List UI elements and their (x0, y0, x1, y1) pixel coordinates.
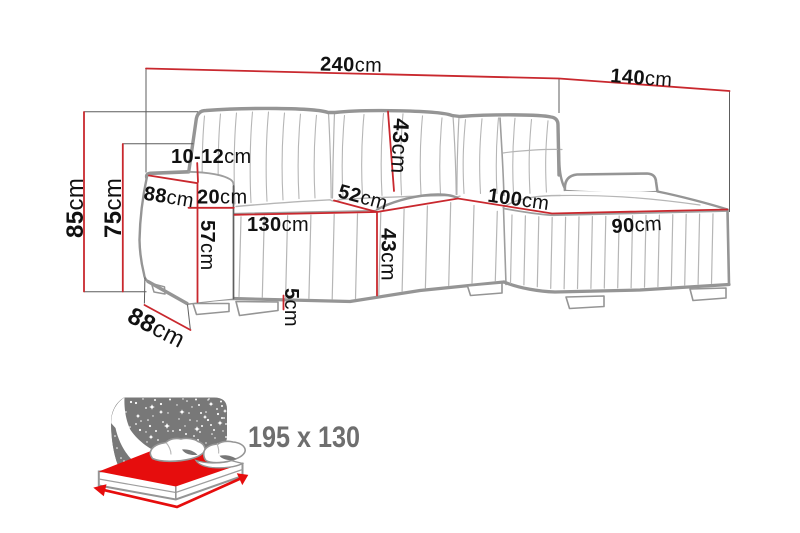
svg-text:10-12cm: 10-12cm (171, 146, 252, 168)
svg-text:90cm: 90cm (611, 213, 663, 238)
svg-text:85cm: 85cm (62, 178, 89, 238)
svg-text:140cm: 140cm (610, 65, 673, 91)
svg-text:195 x 130: 195 x 130 (248, 420, 360, 454)
svg-text:57cm: 57cm (196, 220, 218, 271)
svg-text:240cm: 240cm (320, 54, 383, 77)
svg-text:5cm: 5cm (280, 288, 302, 327)
svg-text:20cm: 20cm (197, 187, 248, 209)
svg-text:130cm: 130cm (247, 214, 309, 236)
svg-text:43cm: 43cm (377, 228, 400, 281)
svg-text:75cm: 75cm (100, 178, 127, 238)
svg-text:43cm: 43cm (386, 118, 414, 175)
